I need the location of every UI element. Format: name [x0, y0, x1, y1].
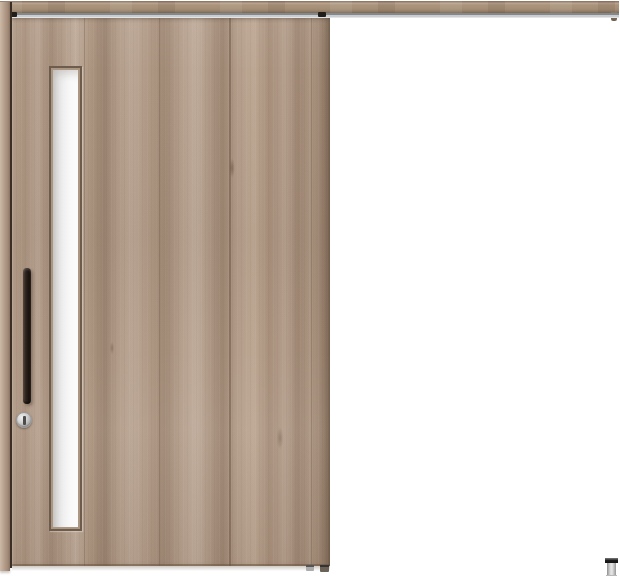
thumbturn-lock — [16, 412, 32, 428]
thumbturn-slot — [23, 416, 26, 425]
door-bottom-shadow — [12, 566, 330, 571]
hanging-rail — [0, 1, 619, 13]
door-handle-bar — [23, 268, 31, 404]
hanger-roller-right — [318, 12, 326, 17]
sliding-door-product-photo — [0, 0, 620, 576]
slit-glass-window — [49, 66, 82, 531]
wall-side-frame — [0, 2, 10, 571]
bottom-guide-left — [306, 565, 314, 571]
bottom-guide-right — [320, 565, 329, 572]
door-panel — [12, 18, 330, 566]
